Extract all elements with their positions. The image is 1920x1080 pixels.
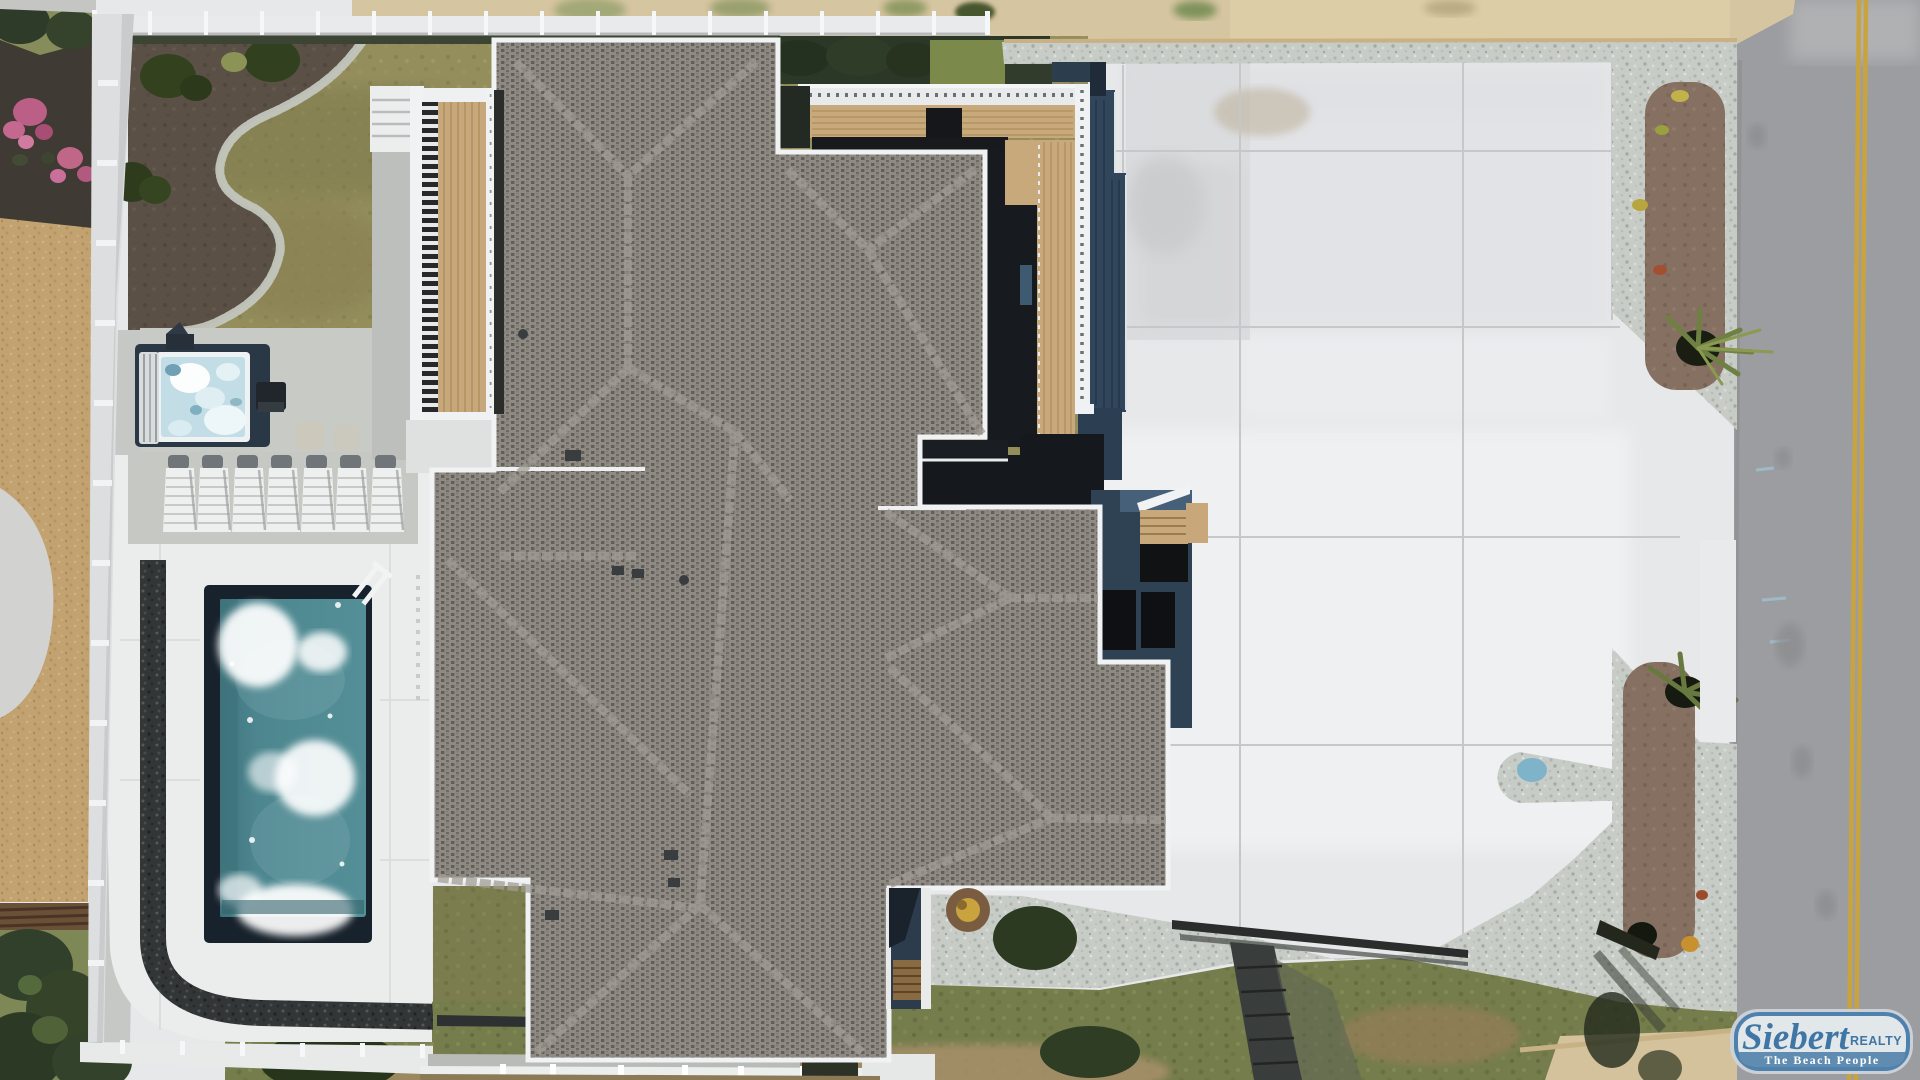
svg-text:Siebert: Siebert: [1742, 1017, 1851, 1058]
svg-text:REALTY: REALTY: [1850, 1034, 1902, 1048]
svg-text:The Beach People: The Beach People: [1764, 1053, 1879, 1067]
